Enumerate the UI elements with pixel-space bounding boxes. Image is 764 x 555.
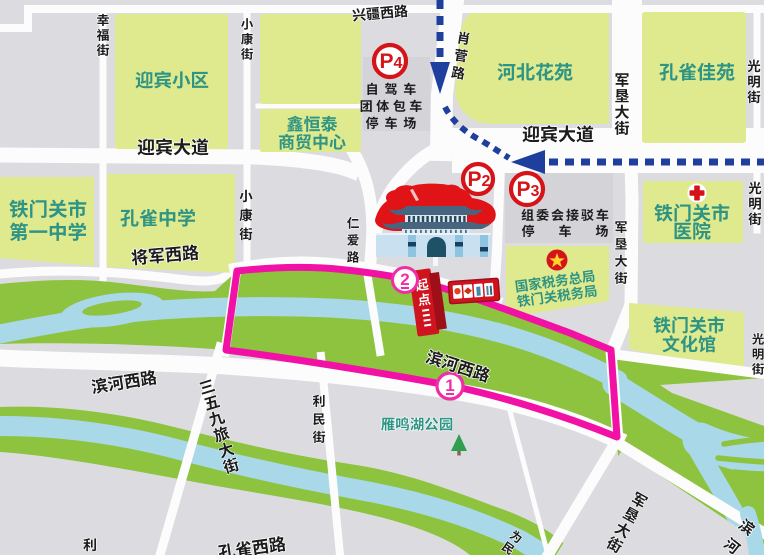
svg-text:2: 2: [400, 270, 409, 289]
svg-text:1: 1: [445, 376, 454, 395]
